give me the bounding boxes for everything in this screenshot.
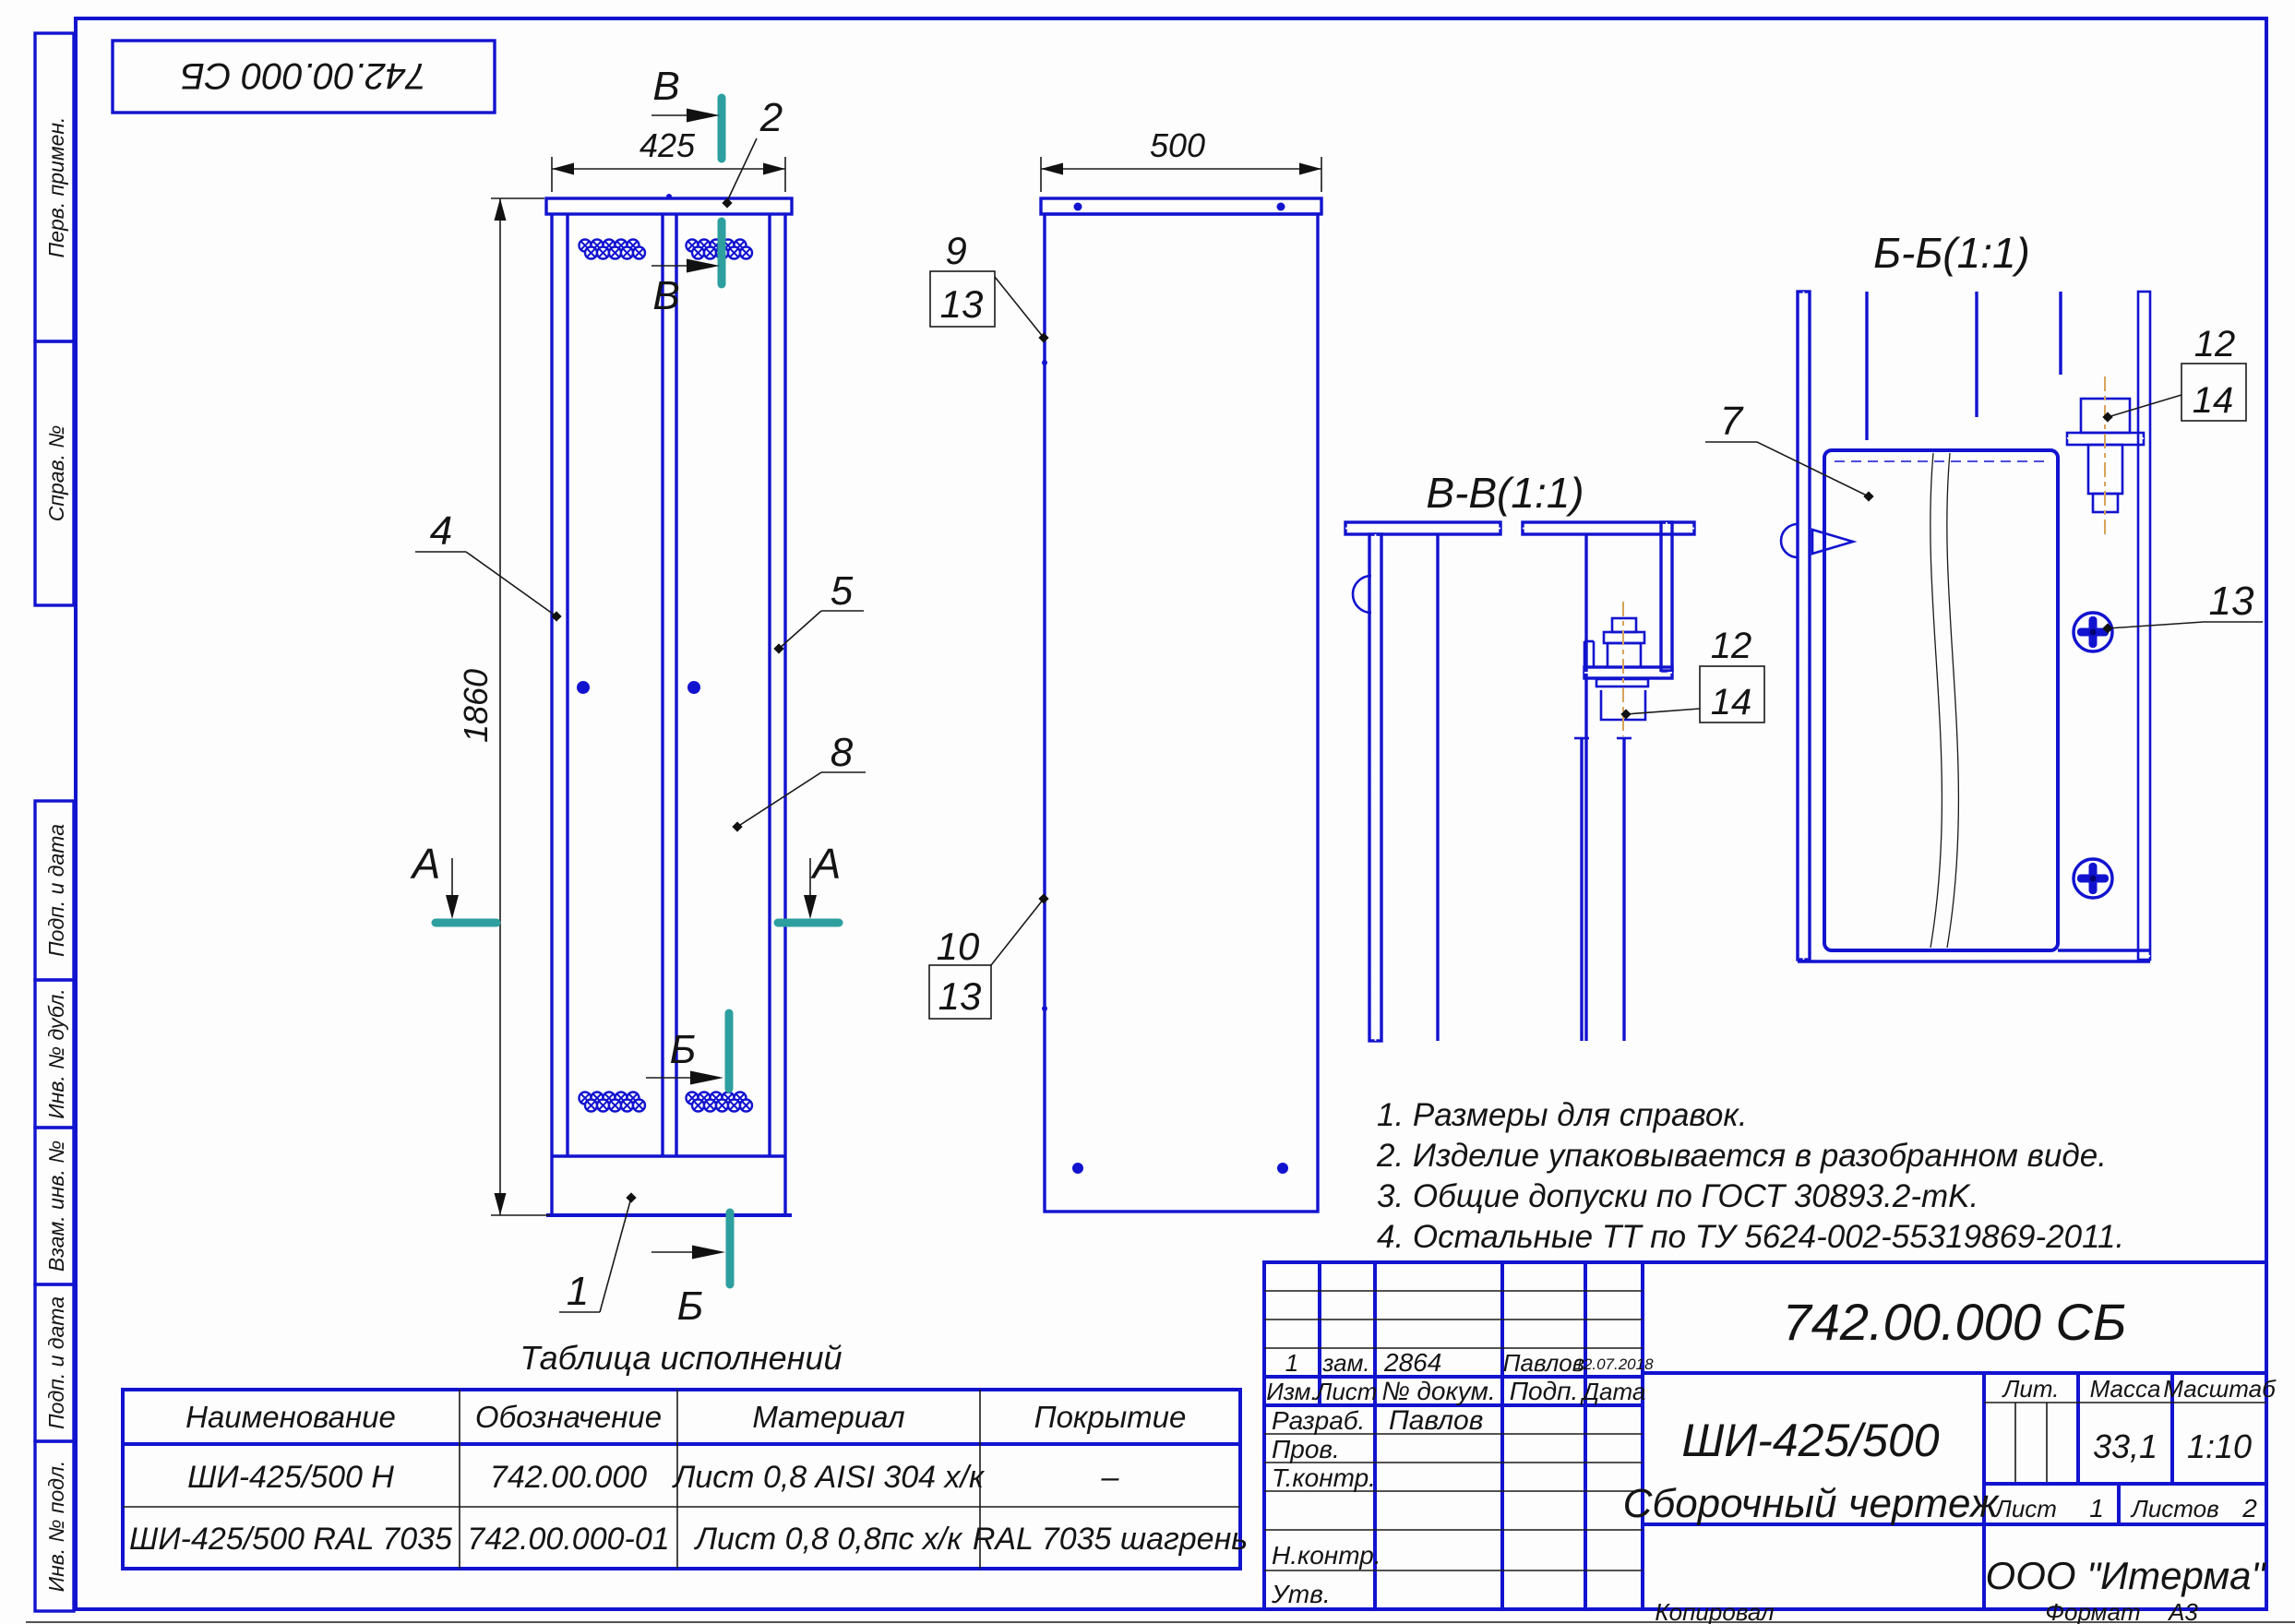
section-letter-v: В bbox=[652, 64, 679, 109]
margin-label-vzam-inv: Взам. инв. № bbox=[44, 1140, 68, 1272]
change-doc-no: 2864 bbox=[1383, 1348, 1441, 1377]
sheets-value: 2 bbox=[2241, 1494, 2257, 1522]
callout-1: 1 bbox=[559, 1192, 637, 1314]
company-name: ООО "Итерма" bbox=[1986, 1554, 2267, 1597]
col-sign: Подп. bbox=[1510, 1377, 1579, 1405]
margin-label-perv-primen: Перв. примен. bbox=[44, 117, 68, 258]
section-letter-a: А bbox=[810, 840, 842, 888]
spec-cell: 742.00.000-01 bbox=[467, 1522, 669, 1557]
callout-5: 5 bbox=[773, 568, 864, 654]
margin-label-sprav-no: Справ. № bbox=[44, 425, 68, 522]
callout-12-label: 12 bbox=[1711, 626, 1752, 666]
callout-14-label: 14 bbox=[1711, 682, 1752, 722]
title-doc-number: 742.00.000 СБ bbox=[1783, 1293, 2127, 1351]
section-letter-b: Б bbox=[677, 1284, 704, 1329]
bolt-detail-vv bbox=[1596, 602, 1648, 736]
role-prov: Пров. bbox=[1272, 1435, 1340, 1463]
margin-label-podp-data-2: Подп. и дата bbox=[44, 1296, 68, 1429]
dim-500: 500 bbox=[1041, 126, 1321, 192]
spec-cell: Лист 0,8 AISI 304 х/к bbox=[672, 1460, 986, 1495]
section-letter-a: А bbox=[410, 840, 441, 888]
callout-10-label: 10 bbox=[937, 925, 980, 968]
margin-label-inv-dubl: Инв. № дубл. bbox=[44, 988, 68, 1118]
left-margin-column: Перв. примен. Справ. № Подп. и дата Инв.… bbox=[35, 33, 74, 1611]
drawing-sheet: Перв. примен. Справ. № Подп. и дата Инв.… bbox=[0, 0, 2295, 1624]
technical-notes: 1. Размеры для справок. 2. Изделие упако… bbox=[1376, 1097, 2124, 1255]
title-block: 1 зам. 2864 Павлов 12.07.2018 Изм. Лист … bbox=[1264, 1262, 2277, 1609]
section-mark-a-left: А bbox=[410, 840, 496, 923]
callout-8: 8 bbox=[732, 730, 866, 832]
change-sign: Павлов bbox=[1503, 1349, 1585, 1377]
callout-9-label: 9 bbox=[945, 229, 966, 272]
callout-9-13: 9 13 bbox=[930, 229, 1049, 343]
callout-2-label: 2 bbox=[759, 95, 783, 140]
spec-cell: Лист 0,8 0,8пс х/к bbox=[694, 1522, 964, 1557]
note-line-2: 2. Изделие упаковывается в разобранном в… bbox=[1376, 1138, 2107, 1174]
callout-12-14-bb: 12 14 bbox=[2102, 324, 2246, 423]
section-mark-b-bottom: Б bbox=[651, 1212, 730, 1329]
dim-425-label: 425 bbox=[639, 126, 696, 164]
section-letter-b: Б bbox=[670, 1027, 697, 1072]
mass-value: 33,1 bbox=[2093, 1427, 2158, 1465]
scale-label: Масштаб bbox=[2163, 1375, 2277, 1403]
callout-12-label: 12 bbox=[2194, 324, 2236, 364]
spec-cell: ШИ-425/500 RAL 7035 bbox=[129, 1522, 452, 1557]
role-nkontr: Н.контр. bbox=[1272, 1541, 1381, 1570]
change-date: 12.07.2018 bbox=[1574, 1355, 1654, 1373]
callout-2: 2 bbox=[722, 95, 783, 209]
role-tkontr: Т.контр. bbox=[1272, 1463, 1376, 1492]
note-line-3: 3. Общие допуски по ГОСТ 30893.2-mK. bbox=[1377, 1178, 1978, 1214]
product-name: ШИ-425/500 bbox=[1681, 1415, 1939, 1466]
callout-13: 13 bbox=[2102, 579, 2263, 634]
margin-label-podp-data-1: Подп. и дата bbox=[44, 824, 68, 957]
callout-13-label: 13 bbox=[938, 974, 982, 1018]
footer-format-label: Формат bbox=[2045, 1598, 2140, 1624]
section-mark-a-right: А bbox=[778, 840, 841, 923]
col-list: Лист bbox=[1314, 1378, 1378, 1405]
col-date: Дата bbox=[1580, 1378, 1646, 1405]
spec-cell: ШИ-425/500 Н bbox=[187, 1460, 394, 1495]
scale-value: 1:10 bbox=[2187, 1427, 2252, 1465]
spec-header-material: Материал bbox=[752, 1400, 904, 1434]
spec-table-title: Таблица исполнений bbox=[520, 1339, 842, 1377]
sheets-label: Листов bbox=[2130, 1495, 2219, 1522]
dim-1860-label: 1860 bbox=[457, 669, 495, 743]
callout-1-label: 1 bbox=[567, 1269, 589, 1314]
mass-label: Масса bbox=[2090, 1375, 2161, 1403]
stamp-doc-number: 742.00.000 СБ bbox=[181, 55, 426, 96]
dim-425: 425 bbox=[552, 126, 785, 192]
callout-7-label: 7 bbox=[1720, 399, 1744, 444]
bolt-detail-bb bbox=[2067, 376, 2144, 535]
phillips-screw-icon bbox=[2074, 859, 2112, 898]
section-view-vv: В-В(1:1) bbox=[1345, 469, 1764, 1041]
spec-table: Таблица исполнений Наименование Обозначе… bbox=[123, 1339, 1248, 1569]
dim-500-label: 500 bbox=[1150, 126, 1205, 164]
callout-14-label: 14 bbox=[2193, 380, 2234, 421]
doc-type: Сборочный чертеж bbox=[1623, 1481, 2000, 1526]
sheet-label: Лист bbox=[1993, 1495, 2057, 1522]
lit-label: Лит. bbox=[2002, 1375, 2060, 1403]
section-vv-title: В-В(1:1) bbox=[1426, 469, 1584, 517]
spec-header-designation: Обозначение bbox=[475, 1400, 662, 1434]
callout-13-label: 13 bbox=[940, 282, 984, 326]
plug-weld-dot bbox=[577, 681, 590, 694]
margin-label-inv-podl: Инв. № подл. bbox=[44, 1461, 68, 1593]
spec-cell: – bbox=[1101, 1460, 1120, 1495]
drawing-canvas: Перв. примен. Справ. № Подп. и дата Инв.… bbox=[0, 0, 2295, 1624]
footer-format-value: А3 bbox=[2167, 1598, 2198, 1624]
role-razrab: Разраб. bbox=[1272, 1406, 1365, 1435]
spec-cell: 742.00.000 bbox=[490, 1460, 647, 1495]
col-doc: № докум. bbox=[1381, 1377, 1495, 1405]
razrab-name: Павлов bbox=[1389, 1405, 1483, 1436]
front-view: 425 1860 В В А bbox=[410, 64, 866, 1329]
callout-10-13: 10 13 bbox=[929, 893, 1049, 1019]
spec-table-row: ШИ-425/500 RAL 7035 742.00.000-01 Лист 0… bbox=[129, 1522, 1248, 1557]
callout-4-label: 4 bbox=[430, 508, 452, 554]
callout-8-label: 8 bbox=[831, 730, 854, 775]
note-line-1: 1. Размеры для справок. bbox=[1377, 1097, 1748, 1133]
change-izm: 1 bbox=[1285, 1349, 1298, 1377]
spot-weld-marks bbox=[580, 240, 753, 1112]
plug-weld-dot bbox=[687, 681, 700, 694]
side-view: 500 9 13 10 13 bbox=[929, 126, 1321, 1212]
role-utv: Утв. bbox=[1271, 1580, 1331, 1608]
callout-5-label: 5 bbox=[831, 568, 854, 614]
change-type: зам. bbox=[1321, 1349, 1369, 1377]
section-bb-title: Б-Б(1:1) bbox=[1873, 229, 2030, 277]
note-line-4: 4. Остальные ТТ по ТУ 5624-002-55319869-… bbox=[1377, 1219, 2124, 1255]
callout-13-label: 13 bbox=[2209, 579, 2254, 624]
spec-cell: RAL 7035 шагрень bbox=[973, 1522, 1248, 1557]
callout-4: 4 bbox=[415, 508, 562, 622]
spec-header-coating: Покрытие bbox=[1034, 1400, 1187, 1434]
col-izm: Изм. bbox=[1266, 1378, 1317, 1405]
callout-12-14-vv: 12 14 bbox=[1620, 626, 1764, 722]
dim-1860: 1860 bbox=[457, 198, 550, 1215]
section-view-bb: Б-Б(1:1) 7 bbox=[1705, 229, 2263, 961]
sheet-value: 1 bbox=[2089, 1494, 2104, 1522]
spec-table-row: ШИ-425/500 Н 742.00.000 Лист 0,8 AISI 30… bbox=[187, 1460, 1119, 1495]
section-mark-b-top: Б bbox=[646, 1013, 729, 1089]
section-letter-v: В bbox=[652, 273, 679, 318]
top-stamp: 742.00.000 СБ bbox=[113, 41, 495, 113]
footer-copied: Копировал bbox=[1655, 1598, 1775, 1624]
spec-header-name: Наименование bbox=[185, 1400, 396, 1434]
